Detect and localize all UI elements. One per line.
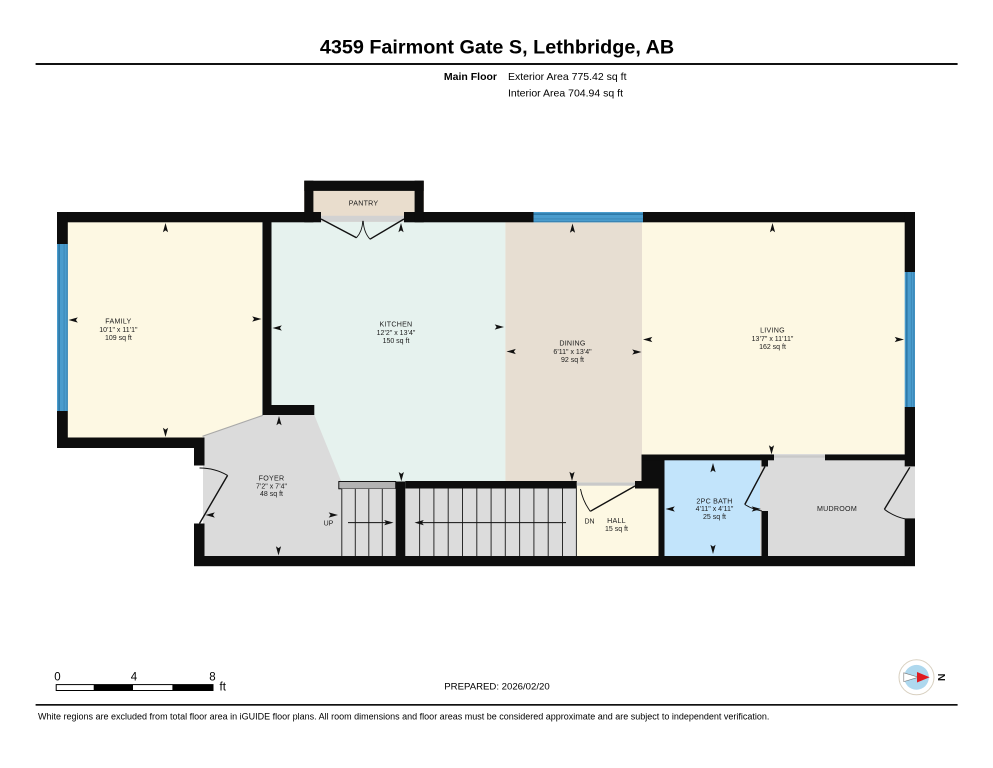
svg-text:Interior Area 704.94 sq ft: Interior Area 704.94 sq ft xyxy=(508,88,623,100)
svg-text:LIVING: LIVING xyxy=(760,327,785,335)
svg-text:10’1" x 11’1": 10’1" x 11’1" xyxy=(99,327,138,334)
svg-text:25 sq ft: 25 sq ft xyxy=(703,514,726,521)
svg-text:FAMILY: FAMILY xyxy=(105,317,131,325)
svg-text:109 sq ft: 109 sq ft xyxy=(105,335,132,342)
svg-text:DINING: DINING xyxy=(559,340,585,348)
svg-text:DN: DN xyxy=(584,519,594,526)
svg-text:White regions are excluded fro: White regions are excluded from total fl… xyxy=(38,712,769,722)
svg-text:FOYER: FOYER xyxy=(259,474,285,482)
svg-text:PREPARED: 2026/02/20: PREPARED: 2026/02/20 xyxy=(444,682,549,693)
svg-text:4: 4 xyxy=(131,672,138,684)
svg-text:8: 8 xyxy=(209,672,215,684)
svg-text:N: N xyxy=(935,674,947,682)
svg-text:HALL: HALL xyxy=(607,517,626,525)
svg-text:12’2" x 13’4": 12’2" x 13’4" xyxy=(377,330,416,337)
svg-text:MUDROOM: MUDROOM xyxy=(817,505,857,513)
svg-text:4359 Fairmont Gate S, Lethbrid: 4359 Fairmont Gate S, Lethbridge, AB xyxy=(320,37,674,59)
svg-text:92 sq ft: 92 sq ft xyxy=(561,357,584,364)
svg-text:Exterior Area 775.42 sq ft: Exterior Area 775.42 sq ft xyxy=(508,71,627,83)
svg-text:7’2" x 7’4": 7’2" x 7’4" xyxy=(256,483,288,490)
svg-text:48 sq ft: 48 sq ft xyxy=(260,491,283,498)
svg-text:162 sq ft: 162 sq ft xyxy=(759,344,786,351)
svg-text:15 sq ft: 15 sq ft xyxy=(605,526,628,533)
svg-text:Main Floor: Main Floor xyxy=(444,71,497,83)
svg-text:6’11" x 13’4": 6’11" x 13’4" xyxy=(553,349,592,356)
svg-text:KITCHEN: KITCHEN xyxy=(380,321,413,329)
svg-text:PANTRY: PANTRY xyxy=(349,200,379,208)
svg-text:UP: UP xyxy=(324,521,334,528)
svg-text:150 sq ft: 150 sq ft xyxy=(383,338,410,345)
svg-text:0: 0 xyxy=(54,672,60,684)
svg-text:4’11" x 4’11": 4’11" x 4’11" xyxy=(696,506,734,513)
svg-text:ft: ft xyxy=(220,682,227,694)
svg-text:2PC BATH: 2PC BATH xyxy=(696,497,732,505)
svg-text:13’7" x 11’11": 13’7" x 11’11" xyxy=(752,336,794,343)
